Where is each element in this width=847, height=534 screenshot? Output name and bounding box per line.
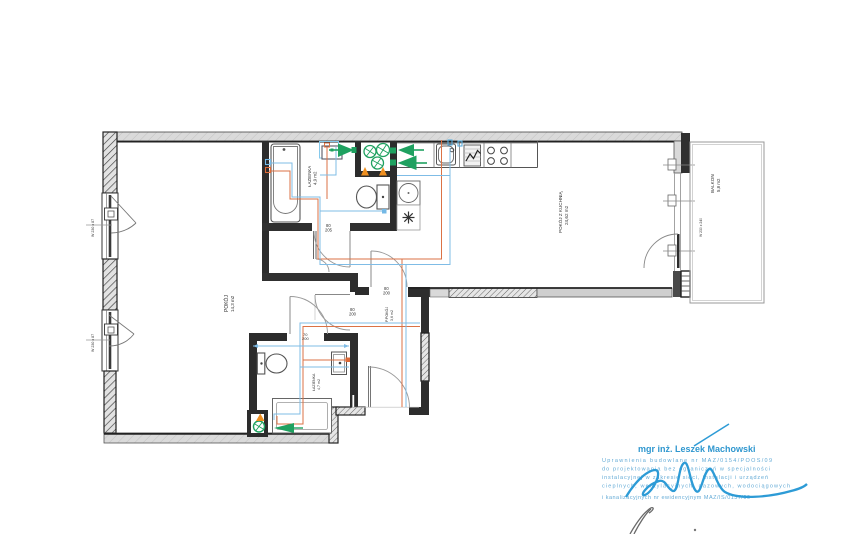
svg-text:5,8 m2: 5,8 m2 [716,178,721,192]
svg-text:BALKON: BALKON [710,174,715,193]
svg-text:200: 200 [302,336,309,341]
svg-text:instalacyjnej w zakresie sieci: instalacyjnej w zakresie sieci, instalac… [602,475,768,481]
svg-text:ŁAZIENKA: ŁAZIENKA [312,373,316,391]
svg-text:POKÓJ Z KUCHNIĄ: POKÓJ Z KUCHNIĄ [557,190,563,233]
svg-text:W 230 x 87: W 230 x 87 [91,219,95,237]
svg-text:do projektowania bez ogranicze: do projektowania bez ograniczeń w specja… [602,467,770,473]
svg-text:14,3 m2: 14,3 m2 [230,295,235,312]
svg-text:3,6 m2: 3,6 m2 [390,310,394,321]
svg-text:P.POKÓJ: P.POKÓJ [384,307,389,322]
svg-text:W 230 x 240: W 230 x 240 [699,218,703,237]
svg-text:200: 200 [383,291,391,296]
svg-text:24,62 m2: 24,62 m2 [564,205,569,225]
svg-text:ŁAZIENKA: ŁAZIENKA [307,166,312,187]
svg-text:4,9 m2: 4,9 m2 [313,171,318,185]
svg-text:i kanalizacyjnych nr ewidencyj: i kanalizacyjnych nr ewidencyjnym MAZ/IS… [602,495,750,501]
svg-text:205: 205 [325,228,333,233]
svg-text:POKÓJ: POKÓJ [223,295,230,312]
svg-text:200: 200 [349,312,357,317]
svg-text:4,7 m2: 4,7 m2 [317,379,321,390]
svg-text:W 230 x 87: W 230 x 87 [91,334,95,352]
svg-text:mgr inż. Leszek Machowski: mgr inż. Leszek Machowski [638,444,756,454]
